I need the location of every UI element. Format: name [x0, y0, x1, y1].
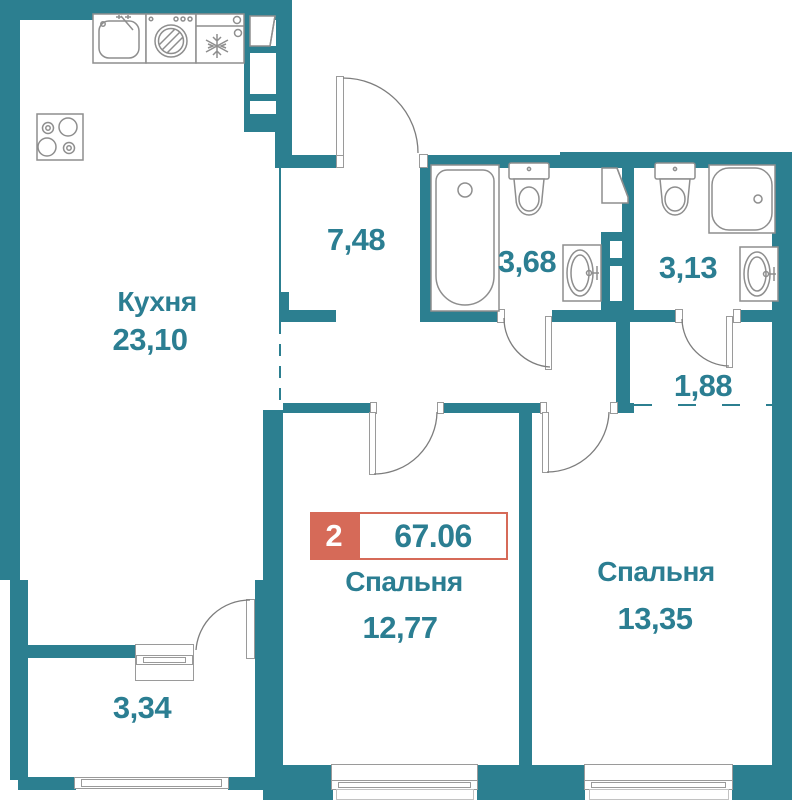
wall-segment: [280, 155, 340, 168]
wall-segment: [10, 580, 28, 780]
sink-icon: [739, 246, 779, 302]
wall-segment: [28, 645, 136, 658]
wall-segment: [279, 310, 336, 322]
vent-shaft: [601, 232, 610, 310]
room-name-bedroom1: Спальня: [345, 566, 462, 598]
wall-segment: [477, 765, 585, 800]
door-leaf: [246, 599, 255, 659]
door-arc: [196, 600, 250, 650]
wall-segment: [255, 580, 283, 777]
wall-segment: [741, 310, 772, 322]
toilet-icon: [652, 162, 698, 218]
vent-shaft-slot: [250, 101, 276, 114]
door-jamb: [419, 154, 428, 168]
door-leaf: [726, 316, 733, 368]
vent-shaft: [601, 258, 634, 266]
room-area-hallway: 1,88: [674, 368, 732, 404]
toilet-icon: [506, 162, 552, 218]
washer-icon: [146, 14, 196, 63]
vent-shaft-slot: [250, 53, 276, 94]
wall-segment: [283, 403, 371, 413]
badge-room-count: 2: [310, 512, 358, 560]
door-leaf: [545, 316, 552, 370]
window-sill: [331, 764, 478, 781]
door-arc: [682, 319, 729, 366]
floor-plan: Кухня 23,10 7,48 3,68 3,13 1,88 Спальня …: [0, 0, 800, 800]
wall-segment: [617, 388, 630, 405]
bathtub-icon: [430, 164, 500, 312]
wall-segment: [732, 765, 792, 800]
wall-segment: [437, 403, 541, 413]
door-jamb: [733, 309, 741, 323]
door-arc: [504, 318, 550, 367]
room-area-bathroom: 3,68: [498, 244, 556, 280]
zone-boundary-dashed: [634, 404, 772, 406]
window: [74, 777, 229, 789]
room-name-kitchen: Кухня: [117, 286, 196, 318]
door-jamb: [610, 402, 618, 414]
water-heater-icon: [601, 167, 629, 204]
badge-total-area: 67.06: [358, 512, 508, 560]
wall-segment: [228, 777, 264, 790]
sink-icon: [562, 244, 602, 302]
room-area-wc: 3,13: [659, 250, 717, 286]
room-area-bedroom2: 13,35: [617, 601, 692, 637]
vent-shaft: [601, 301, 634, 310]
zone-boundary-line: [279, 168, 281, 310]
wall-segment: [519, 413, 532, 765]
shower-tray-icon: [708, 164, 776, 234]
zone-boundary-dashed: [279, 322, 281, 403]
wall-segment: [634, 310, 676, 322]
room-area-bedroom1: 12,77: [362, 610, 437, 646]
door-leaf: [369, 412, 376, 475]
door-jamb: [437, 402, 444, 414]
wall-segment: [263, 765, 333, 800]
door-arc: [547, 412, 609, 472]
corner-cabinet-icon: [249, 15, 277, 48]
door-leaf: [336, 76, 344, 156]
room-area-balcony: 3,34: [113, 690, 171, 726]
wall-segment: [18, 777, 76, 790]
room-name-bedroom2: Спальня: [597, 556, 714, 588]
room-area-entry-hall: 7,48: [327, 222, 385, 258]
kitchen-counter: [92, 13, 245, 64]
window-sill: [336, 789, 474, 800]
wall-segment: [0, 20, 20, 580]
door-leaf: [542, 412, 549, 473]
stove-icon: [36, 113, 84, 161]
window-sill: [589, 789, 729, 800]
door-jamb: [675, 309, 683, 323]
vent-shaft: [601, 232, 634, 241]
door-arc: [374, 412, 437, 474]
room-area-kitchen: 23,10: [112, 322, 187, 358]
window: [136, 655, 193, 665]
door-arc: [343, 78, 418, 153]
door-jamb: [336, 154, 344, 168]
window-sill: [584, 764, 733, 781]
plan-badge: 2 67.06: [310, 512, 508, 560]
